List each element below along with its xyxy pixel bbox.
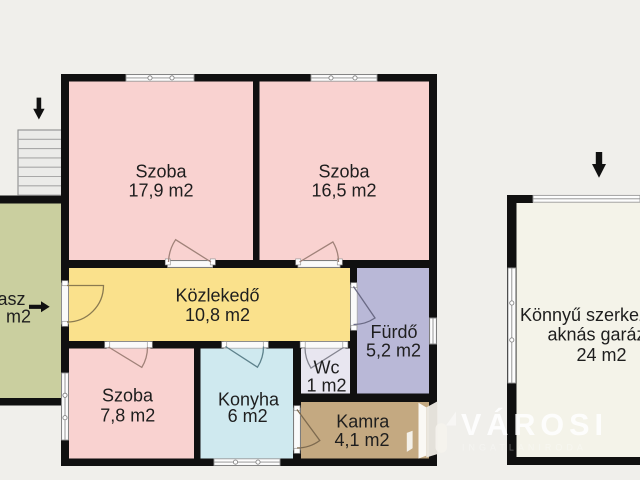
svg-text:Közlekedő: Közlekedő	[175, 285, 259, 305]
svg-text:Könnyű szerkezetes: Könnyű szerkezetes	[520, 305, 640, 325]
svg-text:Szoba: Szoba	[102, 386, 154, 406]
svg-text:Fürdő: Fürdő	[370, 322, 417, 342]
svg-text:17,9 m2: 17,9 m2	[128, 181, 193, 201]
svg-text:INGATLANIRODA: INGATLANIRODA	[462, 443, 587, 453]
svg-text:VÁROSI: VÁROSI	[461, 407, 608, 442]
svg-text:Szoba: Szoba	[318, 162, 370, 182]
svg-text:10,8 m2: 10,8 m2	[185, 305, 250, 325]
svg-text:24 m2: 24 m2	[576, 345, 626, 365]
svg-text:4,1 m2: 4,1 m2	[334, 430, 389, 450]
svg-text:1 m2: 1 m2	[306, 376, 346, 396]
svg-text:7,8 m2: 7,8 m2	[100, 405, 155, 425]
svg-text:5,2 m2: 5,2 m2	[366, 340, 421, 360]
svg-text:aknás garázs: aknás garázs	[547, 325, 640, 345]
svg-text:m2: m2	[6, 307, 31, 327]
svg-text:Wc: Wc	[314, 357, 340, 377]
svg-text:16,5 m2: 16,5 m2	[311, 181, 376, 201]
svg-text:6 m2: 6 m2	[228, 406, 268, 426]
svg-text:Szoba: Szoba	[135, 162, 187, 182]
svg-text:Kamra: Kamra	[336, 411, 390, 431]
